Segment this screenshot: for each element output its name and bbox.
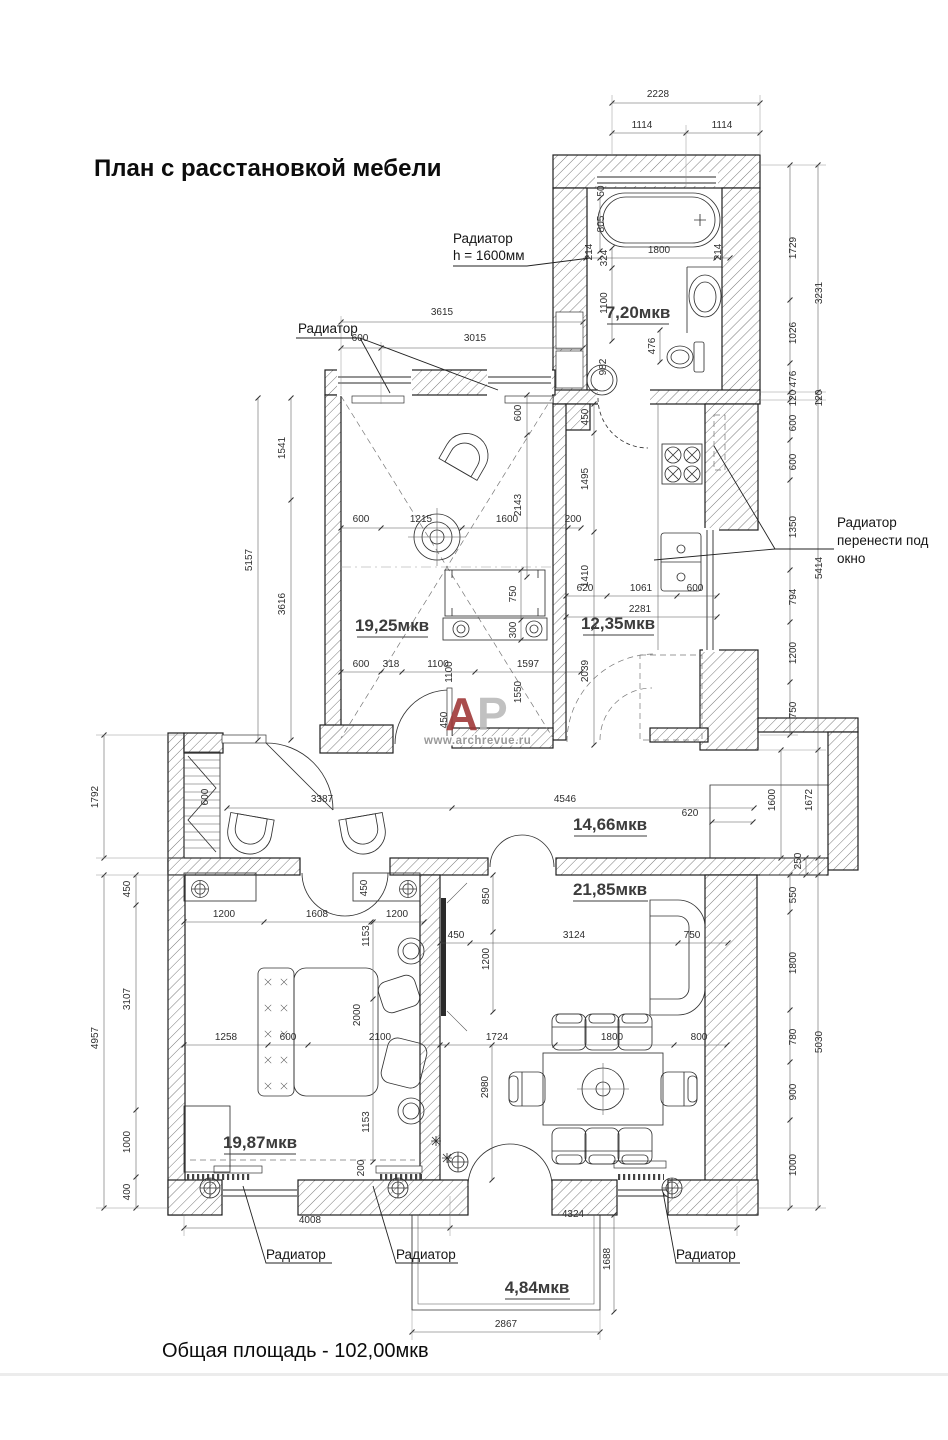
dining-furniture [441,883,705,1172]
dim-label: 476 [647,337,658,354]
dim-label: 1200 [213,909,236,920]
dim-label: 1200 [386,909,409,920]
dim-label: 1114 [632,120,653,131]
dim-label: 1200 [481,947,492,970]
dim-label: 794 [788,588,799,605]
dim-label: 1600 [767,788,778,811]
windows [187,172,725,1196]
area-living: 19,25мкв [355,616,429,635]
cabinet [640,655,702,740]
dim-label: 2000 [352,1003,363,1026]
dim-label: 4546 [554,794,577,805]
dim-label: 2039 [580,659,591,682]
window-bedroom [223,1190,297,1196]
dim-label: 1800 [648,245,671,256]
dim-label: 600 [353,659,370,670]
tv [441,898,446,1016]
dim-label: 1153 [361,925,372,947]
dim-label: 1000 [788,1153,799,1176]
dim-label: 1800 [788,951,799,974]
dim-label: 1608 [306,909,329,920]
dim-label: 750 [684,930,701,941]
dim-label: 450 [448,930,465,941]
dim-label: 120 [814,389,825,406]
total-area: Общая площадь - 102,00мкв [162,1340,429,1362]
dim-label: 476 [788,370,799,387]
radiator-label-bottom-1: Радиатор [266,1247,326,1262]
dim-label: 600 [513,404,524,421]
floor-plan-page: 2228111411141729323110264761201206006001… [0,0,948,1440]
dim-label: 2100 [369,1032,392,1043]
dim-label: 1688 [602,1247,613,1270]
floor-plan-drawing: 2228111411141729323110264761201206006001… [0,0,948,1440]
dim-label: 200 [565,514,582,525]
dim-label: 2867 [495,1319,518,1330]
hall-furniture [184,752,828,858]
star-mark [431,1136,441,1146]
dim-label: 50 [596,185,607,197]
dim-label: 4324 [562,1209,585,1220]
dim-label: 3107 [122,987,133,1010]
hall-chair-2 [339,812,389,857]
dim-label: 1792 [90,785,101,808]
dim-label: 620 [577,583,594,594]
dim-label: 300 [508,621,519,638]
cushion [376,973,422,1015]
radiator-label-living: Радиатор [298,321,358,336]
toilet [694,342,704,372]
dim-label: 324 [599,249,610,266]
dim-label: 600 [200,788,211,805]
dim-label: 1724 [486,1032,509,1043]
area-hall: 14,66мкв [573,815,647,834]
dim-label: 800 [691,1032,708,1043]
dim-label: 5157 [244,548,255,571]
dim-label: 318 [383,659,400,670]
dim-label: 1061 [630,583,653,594]
dim-label: 2228 [647,89,670,100]
kitchen-furniture [640,404,702,740]
area-kitchen: 12,35мкв [581,614,655,633]
dim-label: 1258 [215,1032,238,1043]
dim-label: 1200 [788,641,799,664]
room-area-labels: 7,20мкв 19,25мкв 12,35мкв 14,66мкв 21,85… [223,303,670,1299]
dim-label: 1729 [788,236,799,259]
watermark-letter-p: Р [477,688,508,740]
dim-label: 4957 [90,1026,101,1049]
dim-label: 900 [788,1083,799,1100]
dim-label: 2143 [513,493,524,516]
watermark-letter-a: А [445,688,478,740]
dim-label: 3615 [431,307,454,318]
area-bathroom: 7,20мкв [606,303,671,322]
dim-label: 214 [713,243,724,260]
page-title: План с расстановкой мебели [94,155,441,182]
dim-label: 1550 [513,680,524,703]
dim-label: 1000 [122,1130,133,1153]
dim-label: 982 [598,358,609,375]
dim-label: 5414 [814,556,825,579]
dim-label: 550 [788,886,799,903]
table [445,570,545,616]
dim-label: 3231 [814,281,825,304]
dim-label: 2980 [480,1075,491,1098]
radiator-label-top: Радиатор [453,231,513,246]
radiator-move-label-2: перенести под [837,533,929,548]
dim-label: 600 [788,414,799,431]
dim-label: 1541 [277,436,288,459]
dim-label: 1215 [410,514,433,525]
dim-label: 620 [682,808,699,819]
dim-label: 1597 [517,659,540,670]
dim-label: 1114 [712,120,733,131]
bed [294,968,378,1096]
dim-label: 780 [788,1028,799,1045]
dim-label: 600 [353,514,370,525]
dim-label: 600 [687,583,704,594]
radiator-living-1 [352,396,404,403]
dim-label: 750 [508,585,519,602]
radiator-move-label-1: Радиатор [837,515,897,530]
area-balcony: 4,84мкв [505,1278,570,1297]
hall-chair-1 [224,812,274,857]
radiator-label-bottom-2: Радиатор [396,1247,456,1262]
dim-label: 1800 [601,1032,624,1043]
dim-label: 450 [359,879,370,896]
dim-label: 750 [788,701,799,718]
dim-label: 5030 [814,1030,825,1053]
dim-label: 1495 [580,467,591,490]
closet-left [184,873,256,901]
dim-label: 1100 [444,661,455,683]
dim-label: 1026 [788,321,799,344]
radiator-living-2 [505,396,553,403]
dim-label: 3015 [464,333,487,344]
dim-label: 850 [481,887,492,904]
dim-label: 1153 [361,1111,372,1133]
dim-label: 600 [280,1032,297,1043]
radiator-height-label: h = 1600мм [453,248,525,263]
dim-label: 200 [356,1159,367,1176]
dim-label: 400 [122,1183,133,1200]
window-dining [618,1190,667,1196]
dim-label: 1350 [788,515,799,538]
dim-label: 3616 [277,592,288,615]
radiator-move-label-3: окно [837,551,865,566]
entry-door [222,735,266,743]
dim-label: 250 [793,852,804,869]
dim-label: 3387 [311,794,334,805]
scan-line [0,1373,948,1376]
area-dining: 21,85мкв [573,880,647,899]
dim-label: 3124 [563,930,586,941]
dim-label: 450 [580,408,591,425]
dim-label: 450 [122,880,133,897]
dim-label: 1672 [804,788,815,811]
dim-label: 600 [788,453,799,470]
stove-burners [665,447,700,482]
dim-label: 805 [596,215,607,232]
sofa [650,900,705,1015]
radiator-label-bottom-3: Радиатор [676,1247,736,1262]
dim-label: 1600 [496,514,519,525]
watermark-url: www.archrevue.ru [423,735,531,747]
dim-label: 120 [788,389,799,406]
armchair [439,425,496,480]
area-bedroom: 19,87мкв [223,1133,297,1152]
dim-label: 4008 [299,1215,322,1226]
